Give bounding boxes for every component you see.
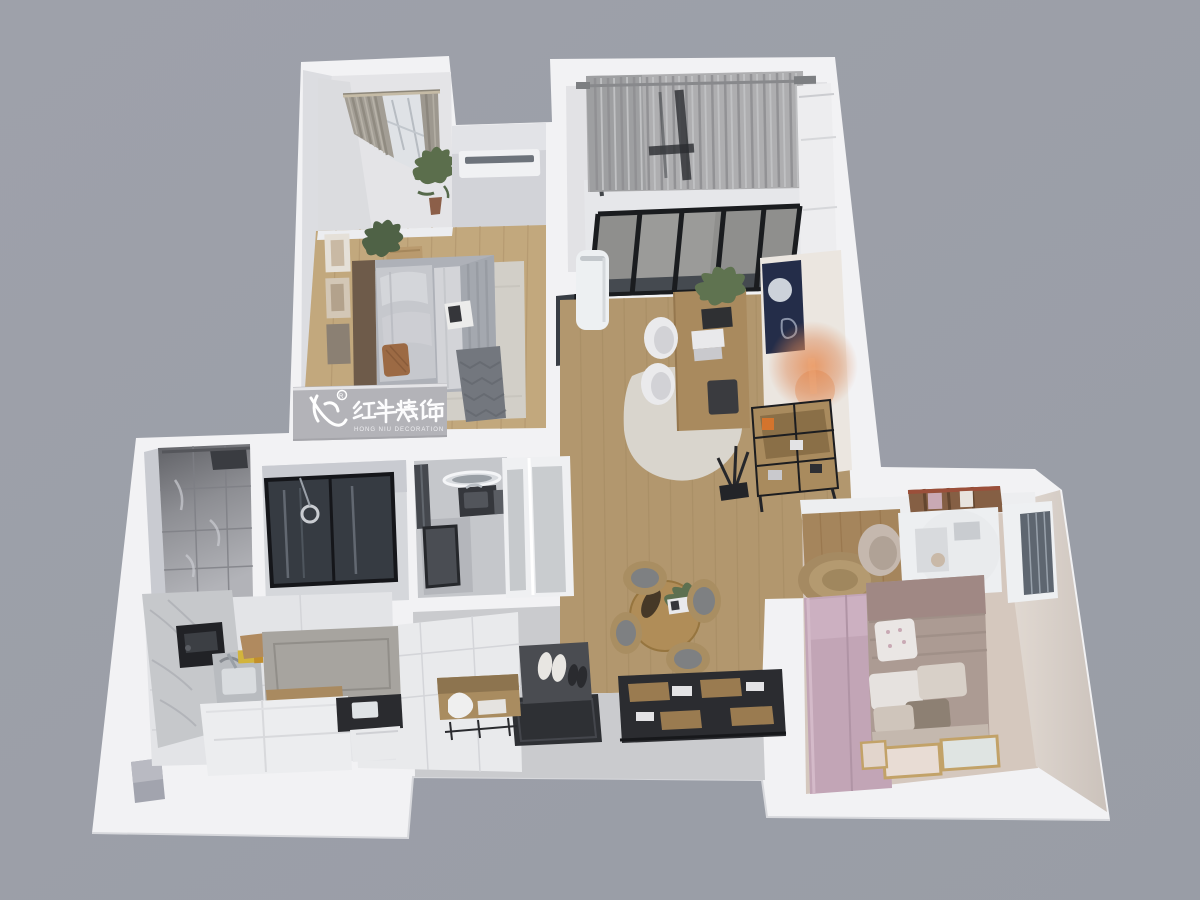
svg-text:HONG NIU DECORATION: HONG NIU DECORATION	[354, 427, 444, 433]
svg-text:R: R	[339, 394, 344, 400]
